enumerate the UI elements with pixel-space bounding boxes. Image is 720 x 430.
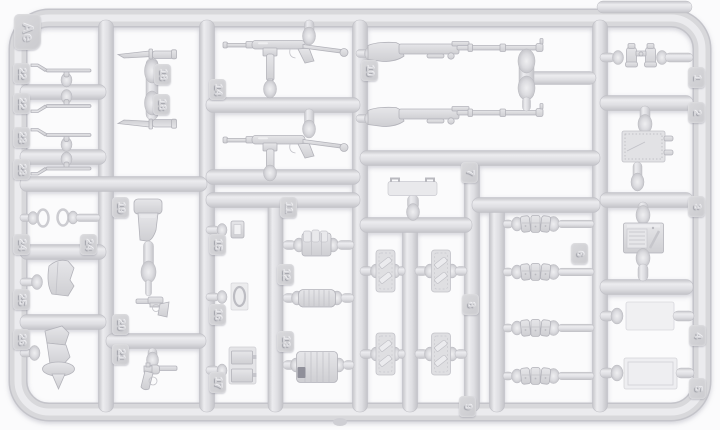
gate-mark	[333, 418, 347, 426]
lid-with-handles-7	[388, 179, 437, 221]
part-tag-8: 8	[462, 294, 479, 315]
pistol-20	[136, 297, 169, 317]
large-canister-13	[283, 352, 354, 383]
part-tag-23: 23	[13, 127, 30, 148]
magazine-pouch-11	[283, 230, 354, 256]
sprue-letter-tag: Ae	[14, 14, 41, 50]
part-tag-2: 2	[688, 102, 705, 123]
bayonets-18	[118, 49, 177, 129]
framed-panel-5	[600, 358, 694, 389]
part-tag-25: 25	[13, 289, 30, 310]
part-tag-16: 16	[209, 304, 226, 325]
kar98k-rifles-10	[356, 39, 596, 127]
equipment-plate-2	[622, 106, 673, 191]
rings-24	[20, 210, 100, 227]
part-tag-18: 18	[154, 64, 171, 85]
part-tag-19: 19	[112, 197, 129, 218]
part-tag-12: 12	[277, 264, 294, 285]
part-tag-17: 17	[209, 372, 226, 393]
part-tag-18: 18	[153, 94, 170, 115]
part-tag-14: 14	[209, 79, 226, 100]
part-tag-22: 22	[13, 93, 30, 114]
part-tag-24: 24	[13, 234, 30, 255]
part-tag-21: 21	[112, 344, 129, 365]
part-tag-7: 7	[461, 162, 478, 183]
sprue-photo: Ae 22 22 23 23 18 18 14 10 1 2 3 24 24 2…	[0, 0, 720, 430]
holster-19	[134, 199, 162, 296]
part-tag-4: 4	[689, 325, 706, 346]
part-tag-1: 1	[688, 67, 705, 88]
flat-panel-4	[600, 302, 694, 330]
field-radio-3	[624, 202, 664, 281]
part-tag-26: 26	[13, 329, 30, 350]
part-tag-11: 11	[280, 197, 297, 218]
gasmask-canister-12	[283, 290, 354, 308]
part-tag-15: 15	[209, 234, 226, 255]
part-tag-9: 9	[459, 396, 476, 417]
binoculars-1	[600, 44, 693, 68]
sprue-gate-remnant	[597, 1, 692, 13]
part-tag-20: 20	[112, 314, 129, 335]
revolver-21	[141, 348, 177, 390]
part-tag-6: 6	[571, 243, 588, 264]
ammo-pouches-6	[503, 215, 594, 384]
part-tag-10: 10	[361, 60, 378, 81]
part-tag-22: 22	[13, 63, 30, 84]
sprue-artwork	[0, 0, 720, 430]
part-tag-23: 23	[13, 159, 30, 180]
part-tag-5: 5	[689, 378, 706, 399]
part-tag-13: 13	[277, 331, 294, 352]
part-tag-24: 24	[80, 234, 97, 255]
part-tag-3: 3	[688, 196, 705, 217]
